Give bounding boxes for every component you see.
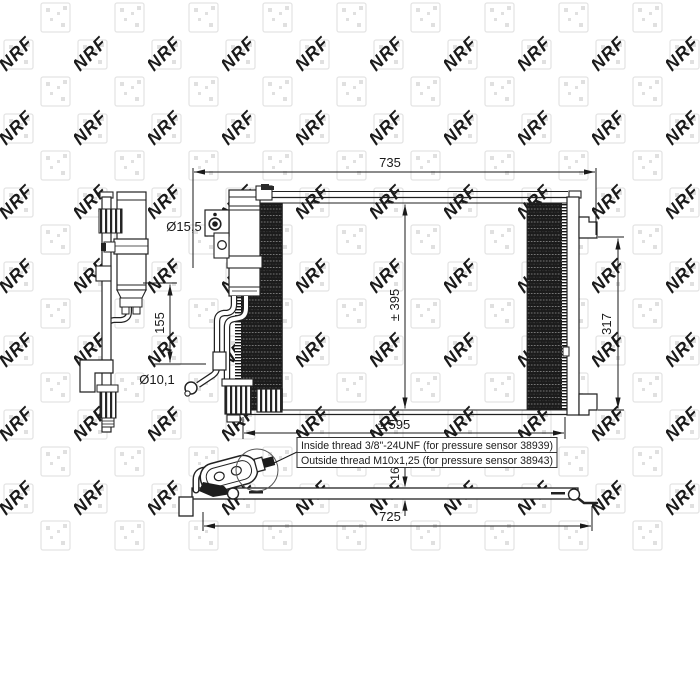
dim-317-label: 317 <box>599 313 614 335</box>
note-outside-thread: Outside thread M10x1,25 (for pressure se… <box>301 455 553 467</box>
note-inside-thread: Inside thread 3/8"-24UNF (for pressure s… <box>301 440 553 452</box>
dim-16-label: 16 <box>388 467 402 481</box>
connector-block-a <box>225 386 251 414</box>
ribbed-bracket <box>99 209 122 233</box>
right-tank <box>567 197 579 415</box>
dim-735-label: 735 <box>379 155 401 170</box>
clamp-band <box>114 239 148 254</box>
fin-band-right <box>527 203 563 410</box>
dim-395-label: ± 395 <box>387 289 402 321</box>
connector-block-b <box>257 389 282 412</box>
dim-155-label: 155 <box>152 312 167 334</box>
dim-port-small-label: Ø10,1 <box>139 372 174 387</box>
condenser-drawing: NRF <box>0 0 700 700</box>
bottom-connector <box>100 392 116 418</box>
thread-note-callout: Inside thread 3/8"-24UNF (for pressure s… <box>274 438 557 468</box>
bracket-hole <box>218 241 227 250</box>
technical-drawing-page: NRF <box>0 0 700 700</box>
dim-port-large-label: Ø15,5 <box>166 219 201 234</box>
dim-725-label: 725 <box>379 509 401 524</box>
dim-595-label: ± 595 <box>378 417 410 432</box>
